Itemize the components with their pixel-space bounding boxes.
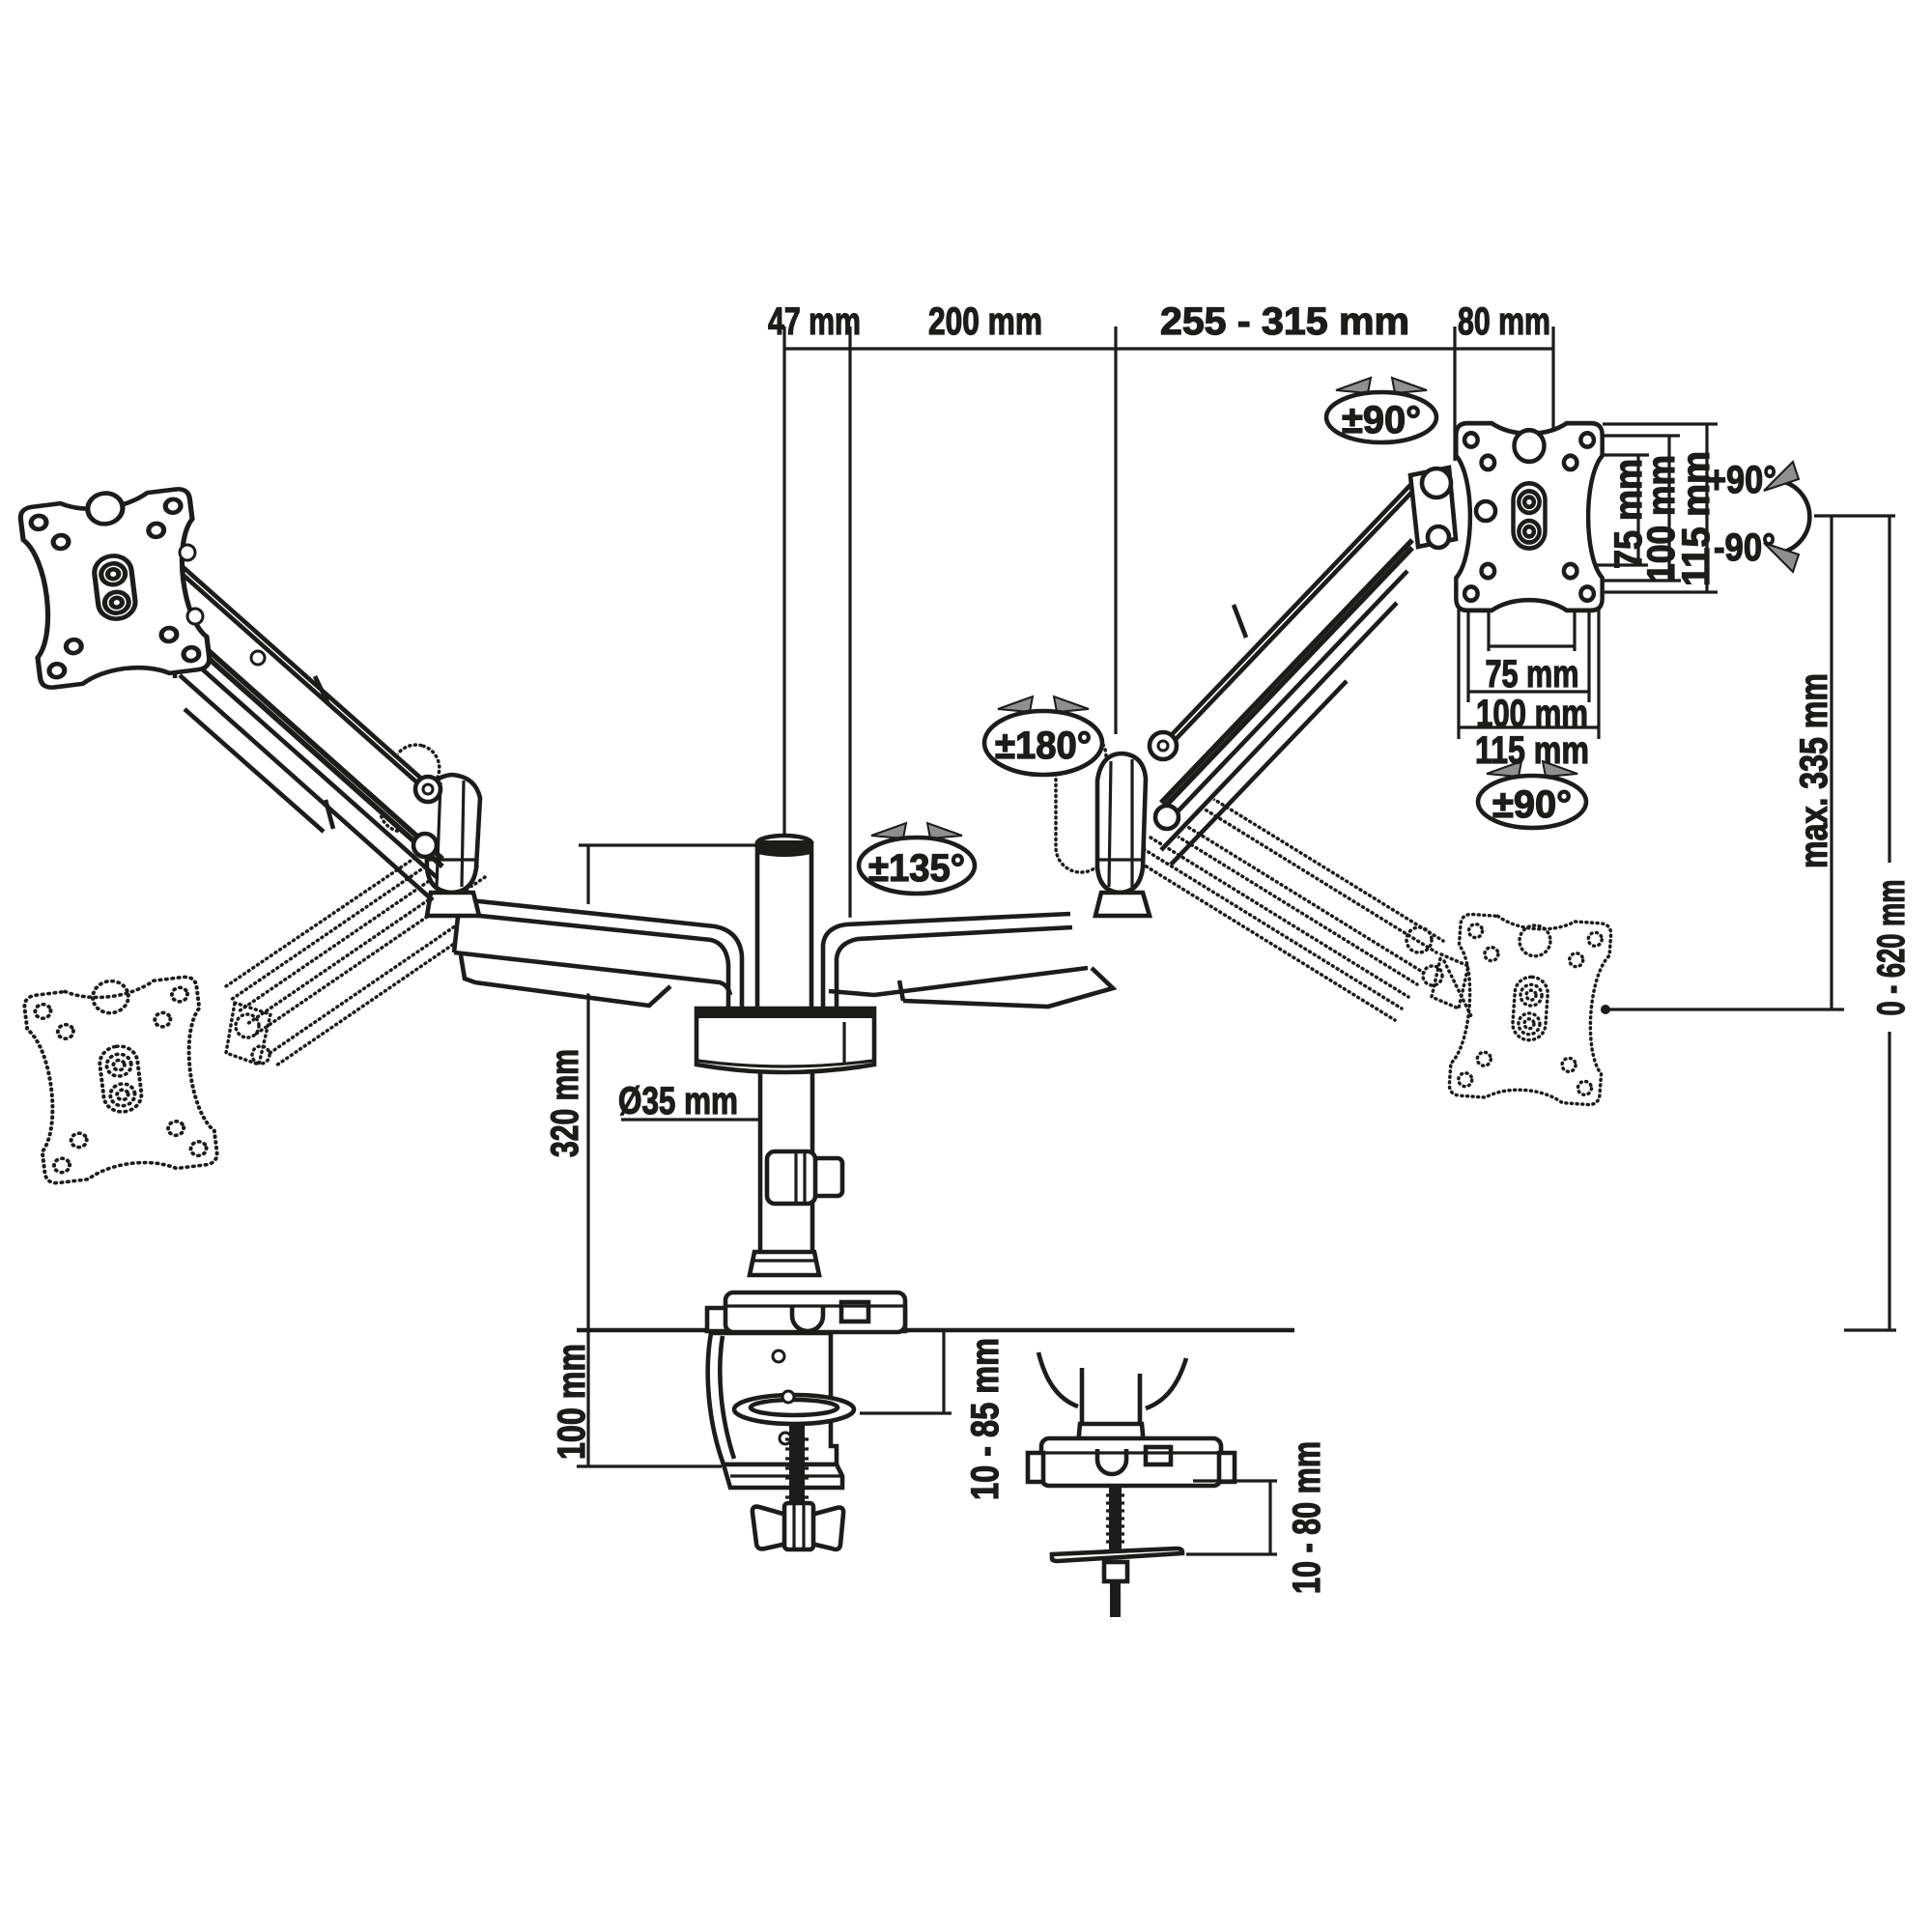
svg-text:255 - 315 mm: 255 - 315 mm [1160,300,1409,343]
svg-text:0 - 620 mm: 0 - 620 mm [1870,880,1913,1016]
svg-text:±180°: ±180° [995,724,1092,767]
svg-text:115 mm: 115 mm [1475,729,1589,772]
svg-text:75 mm: 75 mm [1486,653,1579,696]
svg-text:320 mm: 320 mm [544,1049,586,1157]
svg-text:-90°: -90° [1714,526,1776,569]
svg-text:10 - 80 mm: 10 - 80 mm [1286,1441,1328,1594]
svg-text:200 mm: 200 mm [928,300,1042,343]
svg-text:max. 335 mm: max. 335 mm [1793,673,1835,868]
svg-text:Ø35 mm: Ø35 mm [618,1080,738,1122]
svg-text:±135°: ±135° [868,847,965,890]
svg-text:±90°: ±90° [1342,399,1421,441]
svg-text:10 - 85 mm: 10 - 85 mm [964,1338,1007,1500]
svg-text:±90°: ±90° [1492,783,1572,826]
svg-text:100 mm: 100 mm [551,1344,593,1460]
svg-text:47 mm: 47 mm [768,300,861,343]
svg-text:80 mm: 80 mm [1458,300,1550,343]
svg-text:115 mm: 115 mm [1675,451,1718,586]
